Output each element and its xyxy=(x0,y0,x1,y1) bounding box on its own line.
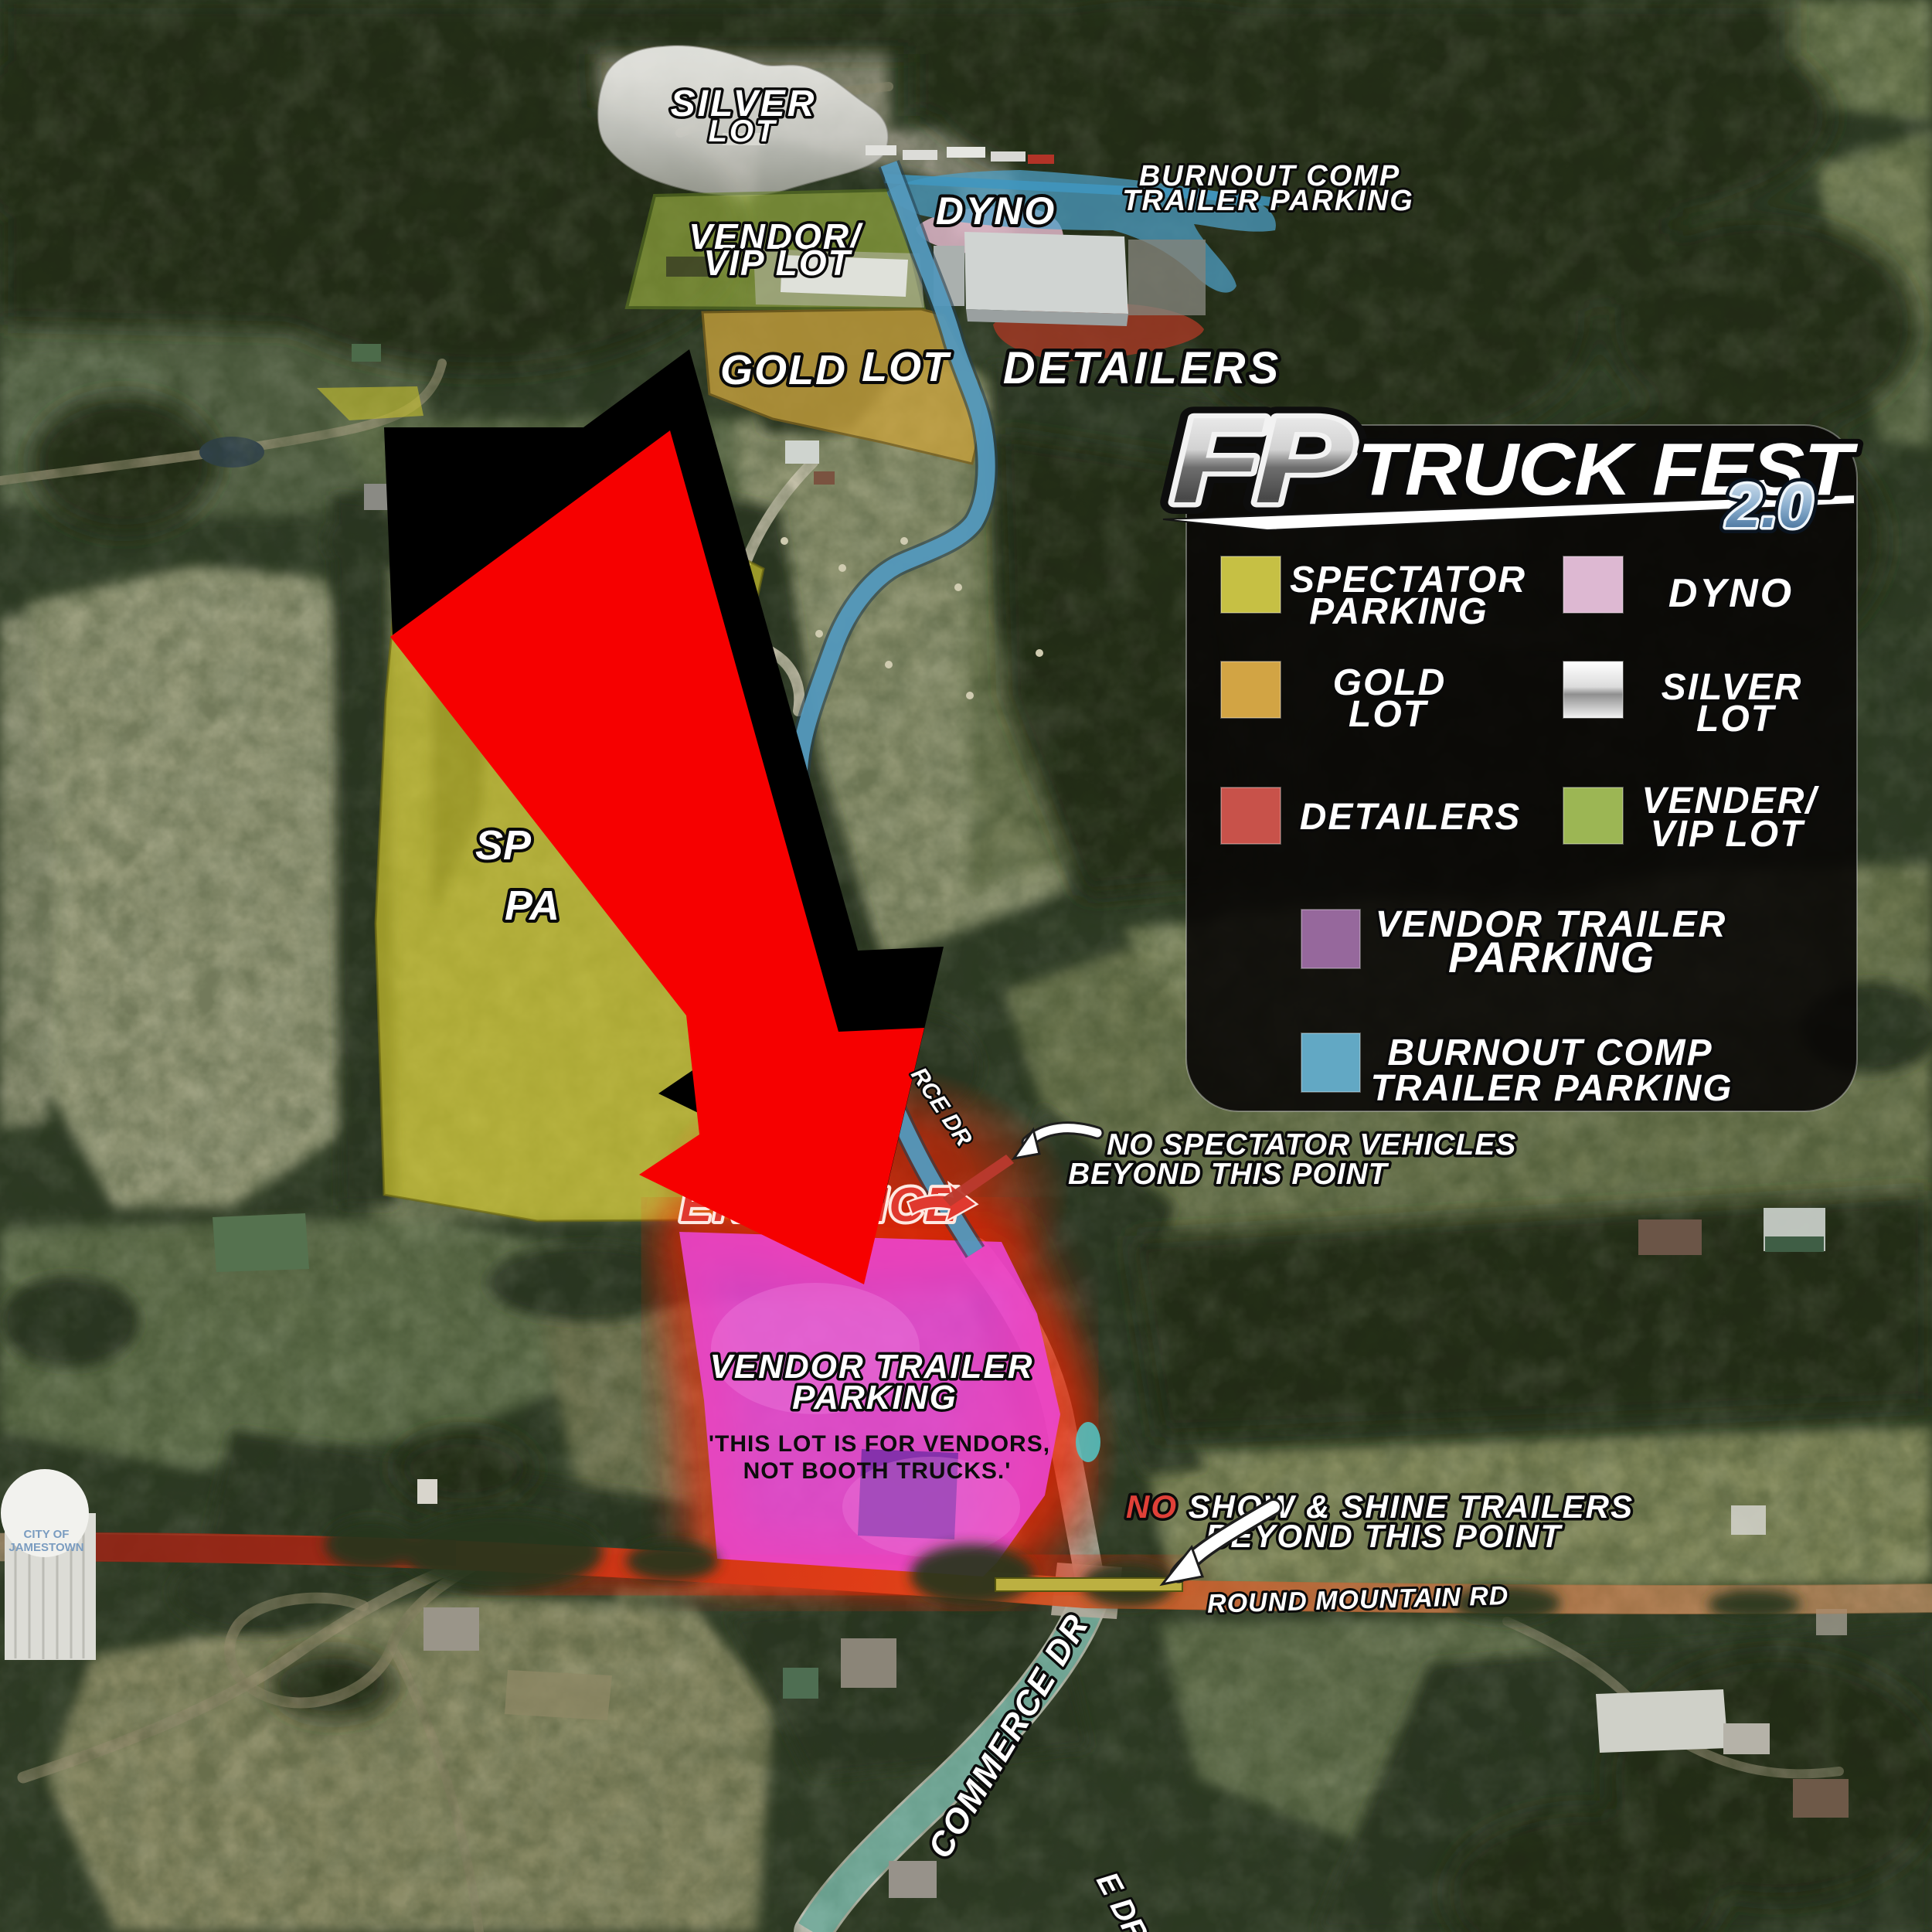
svg-text:PA: PA xyxy=(505,883,560,929)
svg-text:VIP LOT: VIP LOT xyxy=(1651,814,1806,855)
svg-text:DETAILERS: DETAILERS xyxy=(1300,797,1521,838)
svg-text:DETAILERS: DETAILERS xyxy=(1003,343,1281,393)
svg-text:LOT: LOT xyxy=(862,344,951,390)
svg-text:LOT: LOT xyxy=(709,114,778,148)
svg-text:LOT: LOT xyxy=(1349,694,1429,735)
svg-text:BEYOND THIS POINT: BEYOND THIS POINT xyxy=(1068,1158,1389,1191)
svg-text:JAMESTOWN: JAMESTOWN xyxy=(9,1541,83,1554)
svg-text:TRAILER PARKING: TRAILER PARKING xyxy=(1370,1068,1733,1109)
svg-text:GOLD: GOLD xyxy=(720,347,847,393)
svg-text:TRAILER PARKING: TRAILER PARKING xyxy=(1122,185,1414,217)
svg-text:PARKING: PARKING xyxy=(1309,591,1488,632)
svg-text:2.0: 2.0 xyxy=(1725,471,1812,540)
svg-text:CITY OF: CITY OF xyxy=(24,1528,70,1541)
svg-text:'THIS LOT IS FOR VENDORS,: 'THIS LOT IS FOR VENDORS, xyxy=(709,1431,1050,1457)
svg-text:PARKING: PARKING xyxy=(792,1379,957,1417)
svg-text:PARKING: PARKING xyxy=(1448,933,1655,981)
svg-text:FP: FP xyxy=(1172,393,1353,529)
svg-text:NOT BOOTH TRUCKS.': NOT BOOTH TRUCKS.' xyxy=(743,1458,1012,1484)
svg-text:DYNO: DYNO xyxy=(936,189,1056,233)
svg-text:LOT: LOT xyxy=(1696,699,1777,740)
svg-text:NO SPECTATOR VEHICLES: NO SPECTATOR VEHICLES xyxy=(1107,1128,1516,1162)
svg-text:SP: SP xyxy=(475,822,532,869)
svg-text:DYNO: DYNO xyxy=(1668,571,1794,616)
svg-text:VIP LOT: VIP LOT xyxy=(703,243,852,283)
